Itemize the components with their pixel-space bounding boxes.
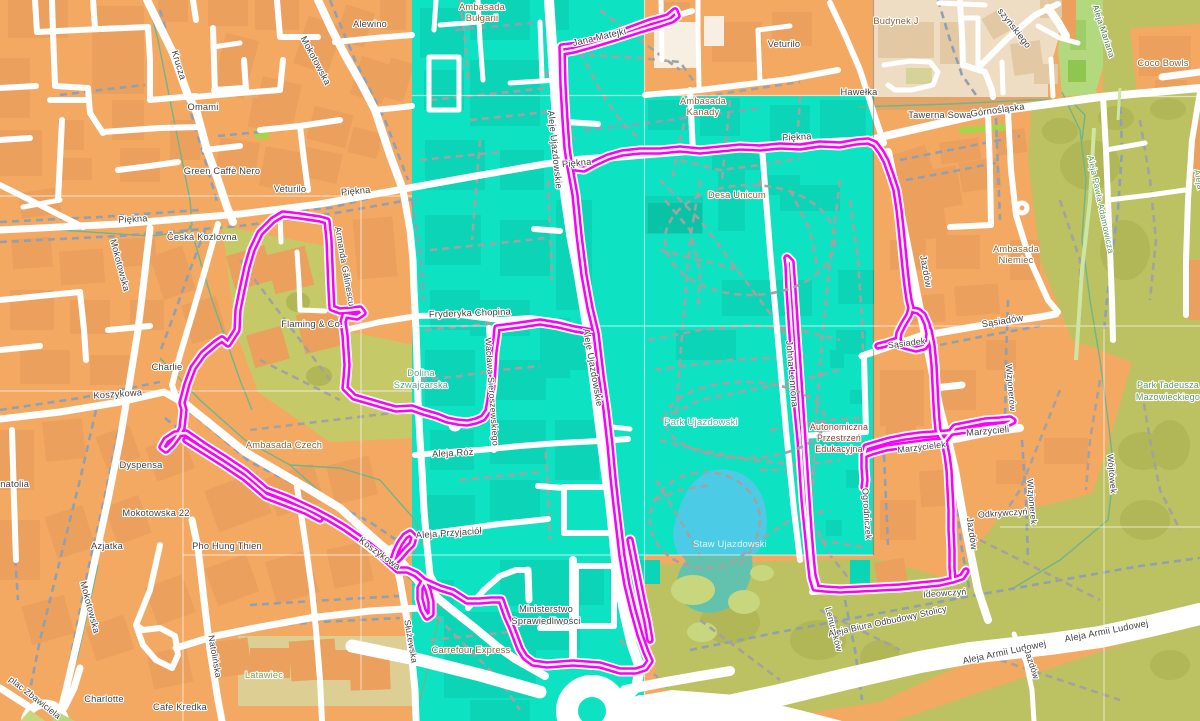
svg-text:Alewino: Alewino	[353, 19, 387, 29]
svg-text:Ambasada: Ambasada	[993, 244, 1040, 254]
svg-text:Desa Unicum: Desa Unicum	[708, 190, 766, 200]
svg-text:Ambasada Czech: Ambasada Czech	[246, 440, 322, 450]
svg-text:Ambasada: Ambasada	[680, 96, 727, 106]
svg-text:Cafe Kredka: Cafe Kredka	[153, 702, 208, 712]
svg-text:Flaming & Co.: Flaming & Co.	[281, 319, 343, 329]
svg-text:Budynek J: Budynek J	[873, 16, 918, 26]
svg-text:Park Ujazdowski: Park Ujazdowski	[664, 417, 738, 428]
svg-text:Edukacyjna: Edukacyjna	[815, 444, 862, 454]
svg-text:Tawerna Sowa: Tawerna Sowa	[908, 110, 972, 120]
svg-text:Coco Bowls: Coco Bowls	[1137, 58, 1188, 68]
svg-text:anatolia: anatolia	[0, 479, 30, 489]
svg-text:Charlotte: Charlotte	[84, 694, 124, 704]
svg-text:Green Caffè Nero: Green Caffè Nero	[184, 166, 260, 176]
svg-text:Ministerstwo: Ministerstwo	[519, 604, 573, 614]
svg-text:Azjatka: Azjatka	[91, 541, 124, 551]
svg-text:Dolina: Dolina	[407, 368, 435, 378]
svg-text:Česká Kozlovna: Česká Kozlovna	[167, 232, 238, 242]
svg-text:Dyspensa: Dyspensa	[120, 460, 164, 470]
svg-text:Pho Hung Thien: Pho Hung Thien	[192, 541, 262, 551]
svg-text:Mazowieckiego: Mazowieckiego	[1136, 392, 1200, 402]
svg-text:Mokotowska 22: Mokotowska 22	[122, 508, 189, 518]
svg-text:Charlie: Charlie	[152, 362, 183, 372]
svg-text:Omami: Omami	[188, 102, 219, 112]
svg-text:Park Tadeusza: Park Tadeusza	[1137, 380, 1199, 390]
svg-text:Autonomiczna: Autonomiczna	[810, 422, 868, 432]
svg-text:Staw Ujazdowski: Staw Ujazdowski	[693, 538, 767, 549]
svg-text:Carrefour Express: Carrefour Express	[432, 645, 511, 655]
svg-text:Latawiec: Latawiec	[245, 670, 283, 680]
svg-text:Piękna: Piękna	[782, 131, 813, 143]
svg-text:Bułgarii: Bułgarii	[466, 13, 499, 23]
svg-text:Hawełka: Hawełka	[840, 87, 878, 97]
svg-text:Veturilo: Veturilo	[274, 184, 307, 194]
svg-text:Szwajcarska: Szwajcarska	[394, 380, 449, 390]
svg-text:Piękna: Piękna	[118, 213, 149, 225]
svg-text:Sprawiedliwości: Sprawiedliwości	[511, 616, 580, 626]
svg-text:Przestrzeń: Przestrzeń	[817, 433, 861, 443]
svg-text:Ambasada: Ambasada	[459, 2, 506, 12]
svg-text:Kanady: Kanady	[687, 107, 720, 117]
svg-text:Niemiec: Niemiec	[999, 255, 1034, 265]
svg-text:Veturilo: Veturilo	[768, 39, 801, 49]
